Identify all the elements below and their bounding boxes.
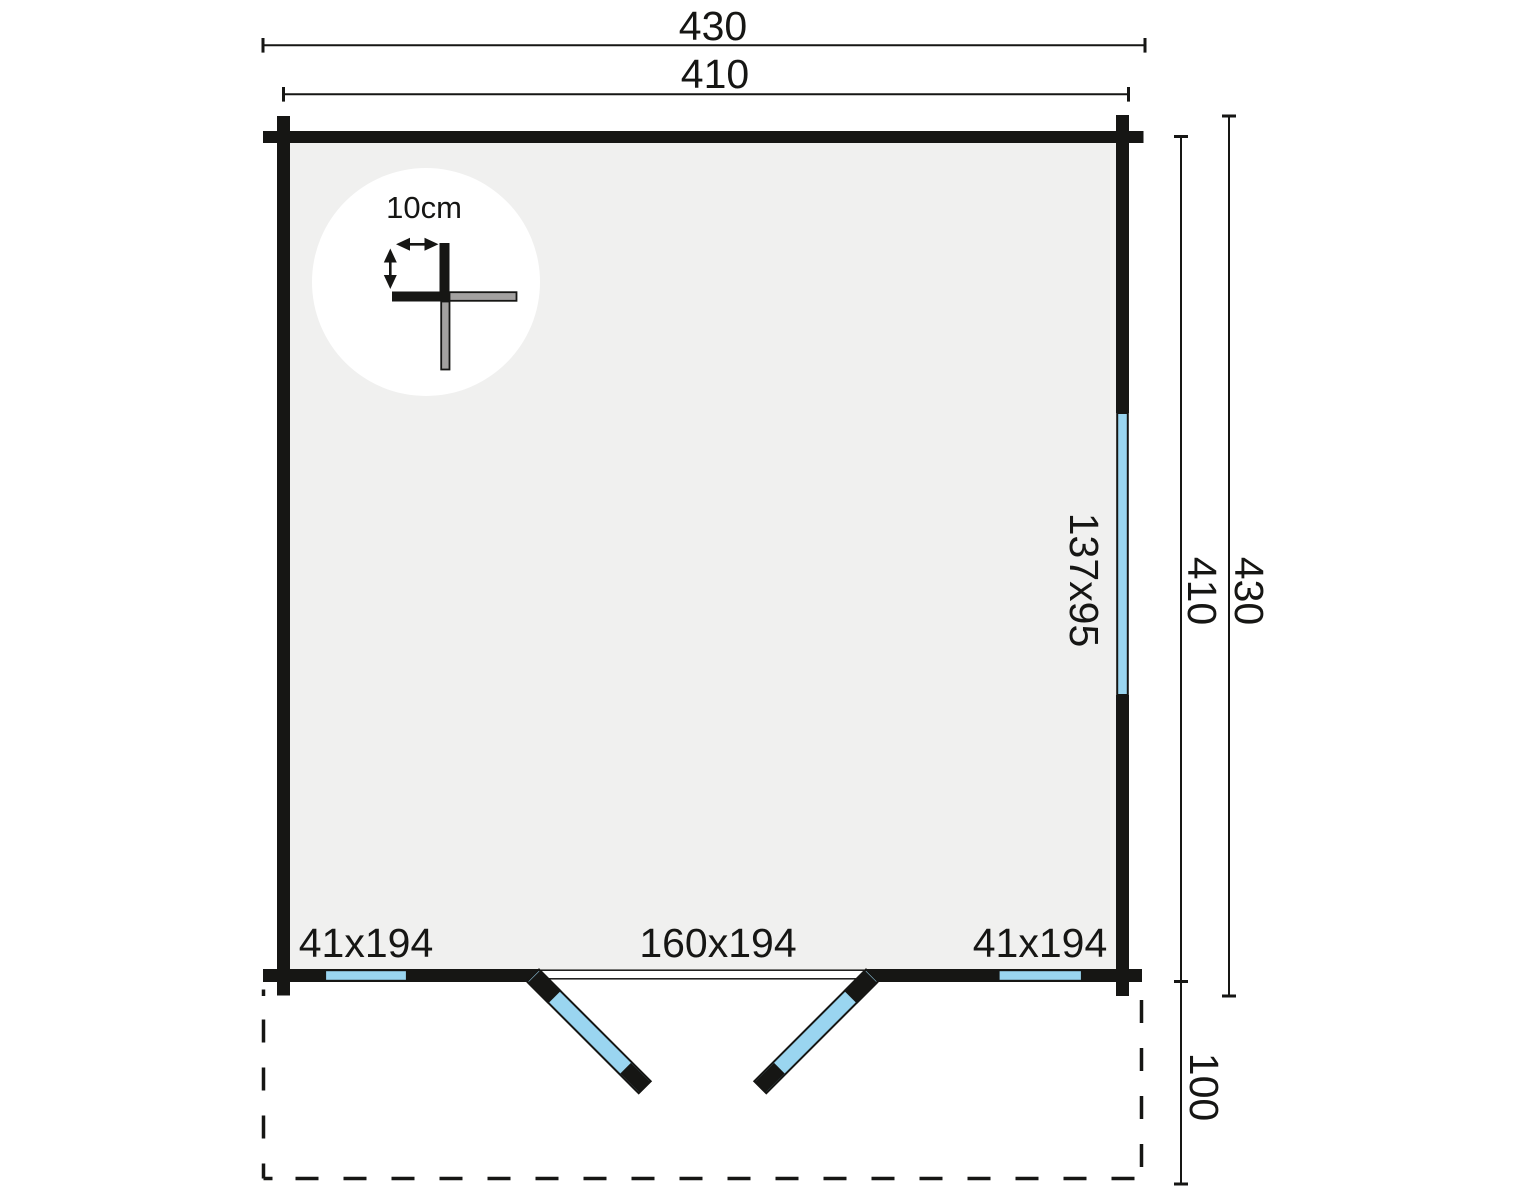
svg-text:100: 100	[1181, 1053, 1227, 1121]
svg-text:41x194: 41x194	[299, 920, 434, 966]
svg-text:410: 410	[681, 51, 749, 97]
svg-text:410: 410	[1179, 557, 1225, 625]
svg-text:137x95: 137x95	[1061, 513, 1107, 648]
svg-text:41x194: 41x194	[973, 920, 1108, 966]
svg-text:430: 430	[1226, 557, 1272, 625]
svg-text:10cm: 10cm	[386, 190, 462, 225]
svg-text:160x194: 160x194	[639, 920, 796, 966]
svg-text:430: 430	[679, 3, 747, 49]
